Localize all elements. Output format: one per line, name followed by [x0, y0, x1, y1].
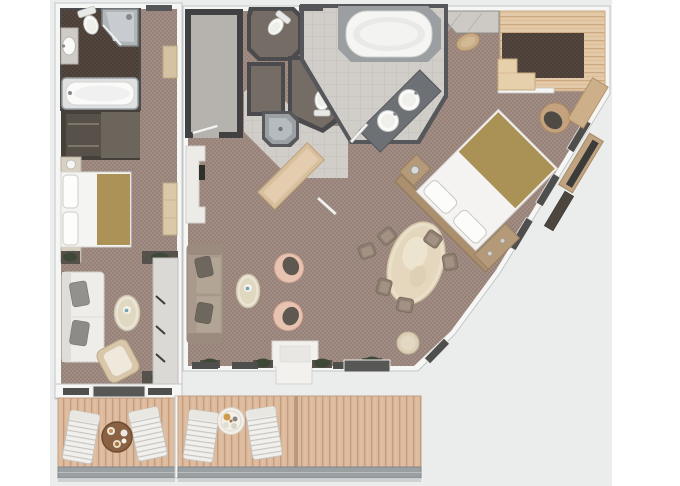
sofa-arm: [187, 333, 223, 344]
plate: [231, 423, 237, 429]
deck-seam: [295, 396, 298, 476]
sideboard: [153, 258, 178, 388]
cup: [122, 439, 127, 444]
pillow: [63, 212, 78, 245]
pillow: [69, 320, 90, 346]
sofa-pillow: [69, 281, 90, 308]
sink-faucet: [414, 91, 418, 95]
sink-inner: [402, 93, 416, 107]
pillow: [69, 281, 90, 308]
plate: [121, 430, 128, 437]
sofa-arm: [187, 244, 223, 255]
food-item: [233, 417, 238, 422]
tv-icon: [199, 165, 205, 180]
entry-closet-floor: [191, 15, 237, 132]
hall-cabinet: [163, 46, 177, 78]
sink-inner: [381, 114, 395, 128]
guest-bed-blanket: [97, 174, 130, 245]
plant-icon: [63, 253, 77, 262]
plan-scene: [50, 0, 612, 486]
window: [148, 388, 172, 395]
table-plate-accent: [125, 309, 129, 313]
tub-basin-highlight: [360, 22, 418, 46]
chair-seat: [444, 256, 455, 268]
floor-plan: [0, 0, 680, 486]
railing-shadow: [58, 478, 175, 482]
pillow: [194, 302, 213, 324]
pillow: [63, 175, 78, 208]
window: [63, 388, 89, 395]
window: [232, 362, 258, 369]
shower-head-icon: [126, 14, 132, 20]
food-item: [224, 414, 231, 421]
sofa-pillow: [69, 320, 90, 346]
dining-chair: [442, 253, 459, 271]
food-item: [230, 420, 233, 423]
toilet-tank: [314, 110, 330, 116]
floor-plan-svg: [0, 0, 680, 486]
railing-shadow: [178, 478, 421, 482]
bathtub-water: [74, 86, 130, 102]
bathtub-faucet: [68, 91, 72, 95]
sink-faucet: [393, 112, 397, 116]
sofa-pillow: [194, 302, 213, 324]
dining-chair: [396, 297, 414, 314]
plant-icon: [314, 359, 330, 368]
shower-drain: [278, 127, 282, 131]
chair-seat: [399, 300, 411, 311]
vanity-desk-top: [280, 346, 310, 362]
deck-lounger: [183, 409, 220, 463]
table-plate-accent: [246, 287, 250, 291]
food-item: [115, 442, 119, 446]
dresser: [163, 183, 177, 235]
cabin-entry-door: [146, 5, 172, 11]
lamp-icon: [67, 160, 76, 169]
balcony-door: [93, 386, 145, 397]
suite-entry-door: [299, 5, 323, 11]
balcony-door: [344, 360, 390, 372]
plate: [223, 422, 229, 428]
left-wardrobe-shelf: [101, 112, 140, 158]
round-ottoman-top: [401, 336, 416, 351]
sink-faucet: [62, 44, 65, 47]
window: [192, 362, 218, 369]
shower-room-floor: [251, 66, 281, 112]
food-item: [109, 429, 113, 433]
